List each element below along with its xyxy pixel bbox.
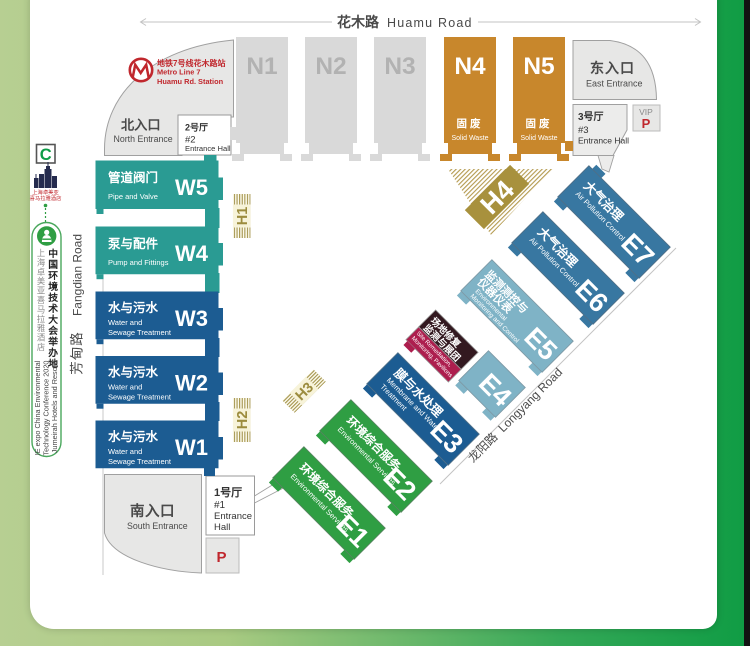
svg-text:C: C bbox=[40, 146, 52, 164]
svg-text:Huamu Road: Huamu Road bbox=[387, 16, 473, 30]
svg-text:中: 中 bbox=[48, 247, 58, 260]
svg-text:1号厅: 1号厅 bbox=[214, 486, 242, 499]
svg-text:花木路: 花木路 bbox=[337, 14, 380, 30]
svg-text:水与污水: 水与污水 bbox=[108, 365, 159, 380]
svg-text:N2: N2 bbox=[315, 53, 346, 80]
svg-text:#1: #1 bbox=[214, 500, 226, 511]
svg-text:国: 国 bbox=[48, 259, 58, 271]
svg-text:P: P bbox=[642, 116, 651, 131]
svg-text:技: 技 bbox=[48, 291, 58, 304]
svg-text:W3: W3 bbox=[175, 306, 208, 331]
svg-text:管道阀门: 管道阀门 bbox=[108, 170, 158, 185]
svg-text:W5: W5 bbox=[175, 175, 208, 200]
svg-text:W4: W4 bbox=[175, 241, 209, 266]
svg-text:上海卓美亚: 上海卓美亚 bbox=[32, 188, 59, 196]
svg-text:Water and: Water and bbox=[108, 383, 142, 392]
svg-text:Metro Line 7: Metro Line 7 bbox=[157, 68, 201, 77]
svg-text:3号厅: 3号厅 bbox=[578, 111, 604, 123]
svg-text:N4: N4 bbox=[454, 53, 486, 80]
svg-text:Sewage Treatment: Sewage Treatment bbox=[108, 393, 172, 402]
svg-text:芳甸路: 芳甸路 bbox=[70, 331, 85, 375]
svg-text:Solid Waste: Solid Waste bbox=[520, 135, 557, 142]
svg-text:#3: #3 bbox=[578, 125, 589, 136]
svg-text:N3: N3 bbox=[384, 53, 415, 80]
svg-text:Huamu Rd. Station: Huamu Rd. Station bbox=[157, 77, 224, 86]
svg-text:South Entrance: South Entrance bbox=[127, 521, 188, 531]
svg-text:East Entrance: East Entrance bbox=[586, 79, 643, 89]
svg-text:大: 大 bbox=[48, 313, 58, 326]
svg-text:办: 办 bbox=[48, 346, 58, 359]
svg-text:水与污水: 水与污水 bbox=[108, 300, 159, 315]
svg-text:水与污水: 水与污水 bbox=[108, 429, 159, 444]
svg-text:固废: 固废 bbox=[526, 117, 553, 130]
svg-text:P: P bbox=[216, 549, 226, 566]
svg-text:Pump and Fittings: Pump and Fittings bbox=[108, 258, 169, 267]
svg-text:境: 境 bbox=[48, 280, 58, 293]
svg-text:环: 环 bbox=[48, 270, 58, 282]
svg-text:举: 举 bbox=[47, 335, 58, 348]
svg-text:会: 会 bbox=[48, 324, 58, 337]
svg-text:North Entrance: North Entrance bbox=[114, 134, 173, 144]
svg-text:Water and: Water and bbox=[108, 447, 142, 456]
svg-text:W2: W2 bbox=[175, 371, 208, 396]
svg-text:Entrance Hall: Entrance Hall bbox=[185, 144, 231, 153]
svg-text:术: 术 bbox=[47, 302, 58, 315]
svg-text:泵与配件: 泵与配件 bbox=[108, 236, 159, 251]
svg-text:Water and: Water and bbox=[108, 318, 142, 327]
svg-text:喜马拉雅酒店: 喜马拉雅酒店 bbox=[30, 194, 62, 202]
svg-text:固废: 固废 bbox=[457, 117, 484, 130]
svg-text:H1: H1 bbox=[235, 207, 251, 226]
svg-text:Jumeirah Hotels and Resort: Jumeirah Hotels and Resort bbox=[50, 363, 59, 453]
svg-text:Entrance: Entrance bbox=[214, 511, 252, 522]
svg-text:2号厅: 2号厅 bbox=[185, 123, 208, 133]
svg-text:N1: N1 bbox=[246, 53, 277, 80]
svg-text:北入口: 北入口 bbox=[121, 118, 161, 133]
svg-text:Solid Waste: Solid Waste bbox=[451, 135, 488, 142]
svg-text:Pipe and Valve: Pipe and Valve bbox=[108, 192, 158, 201]
svg-text:H2: H2 bbox=[235, 411, 251, 430]
svg-text:Sewage Treatment: Sewage Treatment bbox=[108, 328, 172, 337]
svg-text:Hall: Hall bbox=[214, 522, 230, 533]
svg-text:Sewage Treatment: Sewage Treatment bbox=[108, 457, 172, 466]
svg-text:店: 店 bbox=[37, 342, 45, 352]
svg-text:Entrance Hall: Entrance Hall bbox=[578, 136, 629, 146]
svg-text:N5: N5 bbox=[523, 53, 554, 80]
svg-text:南入口: 南入口 bbox=[130, 502, 175, 520]
svg-text:W1: W1 bbox=[175, 435, 208, 460]
svg-text:东入口: 东入口 bbox=[590, 60, 635, 76]
svg-text:地铁7号线花木路站: 地铁7号线花木路站 bbox=[157, 58, 225, 68]
svg-text:Fangdian Road: Fangdian Road bbox=[71, 234, 85, 316]
